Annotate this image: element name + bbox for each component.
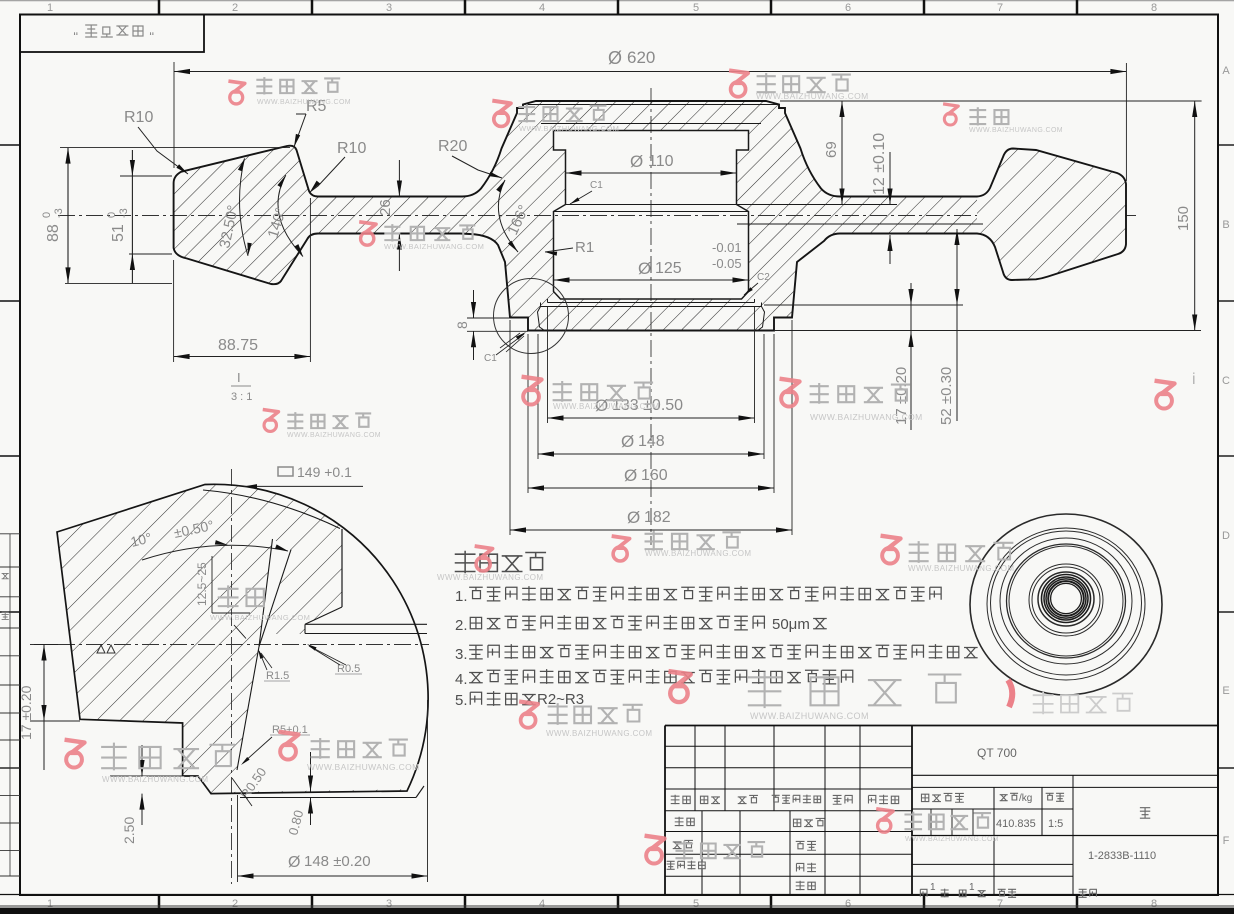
svg-text:WWW.BAIZHUWANG.COM: WWW.BAIZHUWANG.COM — [102, 775, 208, 784]
svg-text:7: 7 — [997, 2, 1003, 14]
svg-text:i: i — [1192, 371, 1196, 388]
svg-text:Ø: Ø — [638, 259, 651, 278]
svg-text:R10: R10 — [124, 109, 153, 126]
svg-text:R1.5: R1.5 — [266, 670, 289, 682]
svg-text:WWW.BAIZHUWANG.COM: WWW.BAIZHUWANG.COM — [908, 564, 1014, 573]
svg-text:5.: 5. — [455, 692, 468, 709]
svg-text:620: 620 — [627, 48, 655, 67]
svg-text:-0.01: -0.01 — [712, 240, 742, 255]
svg-text:12 ±0.10: 12 ±0.10 — [871, 133, 888, 195]
svg-text:-3: -3 — [53, 208, 65, 218]
svg-text:I: I — [237, 370, 241, 385]
svg-text:1:5: 1:5 — [1048, 818, 1063, 830]
svg-text:150: 150 — [1175, 206, 1192, 231]
svg-text:148 ±0.20: 148 ±0.20 — [304, 853, 371, 870]
svg-text:C: C — [1222, 375, 1230, 387]
svg-text:C1: C1 — [590, 180, 603, 191]
svg-text:88.75: 88.75 — [218, 337, 258, 354]
svg-text:3: 3 — [386, 2, 392, 14]
svg-text:3.: 3. — [455, 646, 468, 663]
svg-text:8: 8 — [454, 321, 470, 329]
svg-text:WWW.BAIZHUWANG.COM: WWW.BAIZHUWANG.COM — [287, 432, 381, 439]
svg-text:WWW.BAIZHUWANG.COM: WWW.BAIZHUWANG.COM — [437, 573, 543, 582]
svg-text:1: 1 — [930, 882, 936, 893]
svg-text:1-2833B-1110: 1-2833B-1110 — [1088, 850, 1156, 862]
svg-text:Ø: Ø — [627, 508, 640, 527]
svg-text:110: 110 — [648, 153, 674, 170]
svg-text:R1: R1 — [575, 239, 594, 256]
svg-text:160: 160 — [641, 467, 668, 484]
svg-text:6: 6 — [845, 2, 851, 14]
svg-text:/kg: /kg — [1019, 793, 1032, 804]
svg-text:5: 5 — [693, 2, 699, 14]
svg-text:WWW.BAIZHUWANG.COM: WWW.BAIZHUWANG.COM — [307, 762, 420, 772]
svg-text:17 ±0.20: 17 ±0.20 — [18, 685, 34, 740]
svg-text:50μm: 50μm — [772, 616, 810, 633]
svg-text:4.: 4. — [455, 671, 468, 688]
svg-text:88: 88 — [45, 224, 62, 242]
svg-text:Ø: Ø — [288, 854, 300, 871]
svg-text:": " — [149, 23, 154, 38]
svg-text:": " — [73, 23, 78, 38]
svg-text:26: 26 — [377, 199, 394, 216]
svg-text:WWW.BAIZHUWANG.COM: WWW.BAIZHUWANG.COM — [645, 549, 751, 558]
svg-text:1: 1 — [47, 2, 53, 14]
svg-text:WWW.BAIZHUWANG.COM: WWW.BAIZHUWANG.COM — [750, 711, 869, 721]
svg-text:12.5~25: 12.5~25 — [195, 562, 209, 606]
svg-text:3 : 1: 3 : 1 — [231, 391, 252, 403]
svg-text:WWW.BAIZHUWANG.COM: WWW.BAIZHUWANG.COM — [546, 729, 652, 738]
svg-text:WWW.BAIZHUWANG.COM: WWW.BAIZHUWANG.COM — [553, 402, 659, 411]
svg-text:1.: 1. — [455, 588, 468, 605]
svg-text:WWW.BAIZHUWANG.COM: WWW.BAIZHUWANG.COM — [810, 412, 923, 422]
svg-text:D: D — [1222, 530, 1230, 542]
svg-text:WWW.BAIZHUWANG.COM: WWW.BAIZHUWANG.COM — [210, 613, 310, 622]
svg-text:Ø: Ø — [630, 152, 643, 171]
svg-text:WWW.BAIZHUWANG.COM: WWW.BAIZHUWANG.COM — [905, 836, 999, 843]
svg-text:-3: -3 — [118, 208, 130, 218]
svg-text:148: 148 — [638, 433, 665, 450]
svg-text:0: 0 — [106, 212, 118, 218]
svg-text:-0.05: -0.05 — [712, 256, 742, 271]
svg-text:R0.5: R0.5 — [337, 663, 360, 675]
svg-text:Ø: Ø — [621, 432, 634, 451]
svg-text:F: F — [1223, 835, 1230, 847]
svg-text:R20: R20 — [438, 138, 467, 155]
svg-text:1: 1 — [969, 882, 975, 893]
svg-text:WWW.BAIZHUWANG.COM: WWW.BAIZHUWANG.COM — [969, 127, 1063, 134]
svg-text:E: E — [1222, 685, 1229, 697]
svg-text:0: 0 — [41, 212, 53, 218]
svg-text:C2: C2 — [757, 272, 770, 283]
svg-text:QT 700: QT 700 — [977, 746, 1017, 760]
svg-text:C1: C1 — [484, 353, 497, 364]
svg-text:410.835: 410.835 — [996, 818, 1036, 830]
svg-text:8: 8 — [1151, 2, 1157, 14]
svg-text:Ø: Ø — [608, 48, 622, 68]
svg-text:A: A — [1222, 65, 1230, 77]
svg-text:51: 51 — [110, 224, 127, 242]
svg-text:WWW.BAIZHUWANG.COM: WWW.BAIZHUWANG.COM — [756, 91, 869, 101]
svg-text:WWW.BAIZHUWANG.COM: WWW.BAIZHUWANG.COM — [519, 124, 619, 133]
svg-text:Ø: Ø — [624, 466, 637, 485]
svg-text:WWW.BAIZHUWANG.COM: WWW.BAIZHUWANG.COM — [257, 99, 351, 106]
svg-text:4: 4 — [539, 2, 545, 14]
svg-text:2.50: 2.50 — [121, 817, 137, 844]
svg-text:2.: 2. — [455, 617, 468, 634]
svg-text:52 ±0.30: 52 ±0.30 — [938, 367, 955, 425]
svg-text:B: B — [1222, 219, 1229, 231]
svg-text:149 +0.1: 149 +0.1 — [297, 464, 352, 480]
svg-text:2: 2 — [232, 2, 238, 14]
svg-text:182: 182 — [644, 509, 671, 526]
svg-text:R2~R3: R2~R3 — [537, 691, 584, 708]
svg-text:R10: R10 — [337, 140, 366, 157]
svg-text:125: 125 — [655, 260, 682, 277]
svg-text:69: 69 — [823, 141, 840, 158]
svg-text:WWW.BAIZHUWANG.COM: WWW.BAIZHUWANG.COM — [384, 242, 484, 251]
